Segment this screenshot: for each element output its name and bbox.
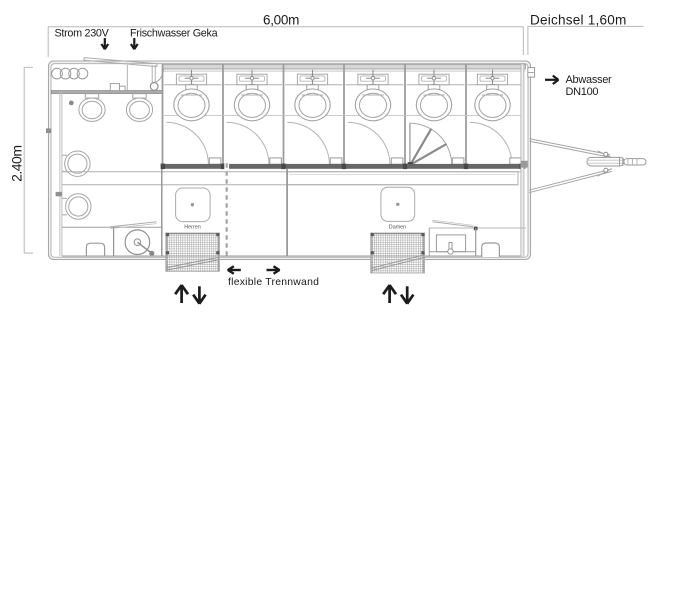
svg-text:Strom 230V: Strom 230V bbox=[55, 28, 110, 40]
svg-text:Deichsel 1,60m: Deichsel 1,60m bbox=[530, 13, 627, 28]
svg-text:Herren: Herren bbox=[184, 225, 200, 231]
svg-text:6,00m: 6,00m bbox=[263, 13, 299, 28]
svg-text:flexible Trennwand: flexible Trennwand bbox=[228, 277, 319, 288]
svg-text:Abwasser: Abwasser bbox=[566, 74, 613, 86]
svg-text:2.40m: 2.40m bbox=[9, 145, 25, 181]
svg-text:Damen: Damen bbox=[389, 225, 406, 231]
svg-text:Frischwasser Geka: Frischwasser Geka bbox=[130, 28, 218, 40]
svg-text:DN100: DN100 bbox=[566, 86, 599, 98]
